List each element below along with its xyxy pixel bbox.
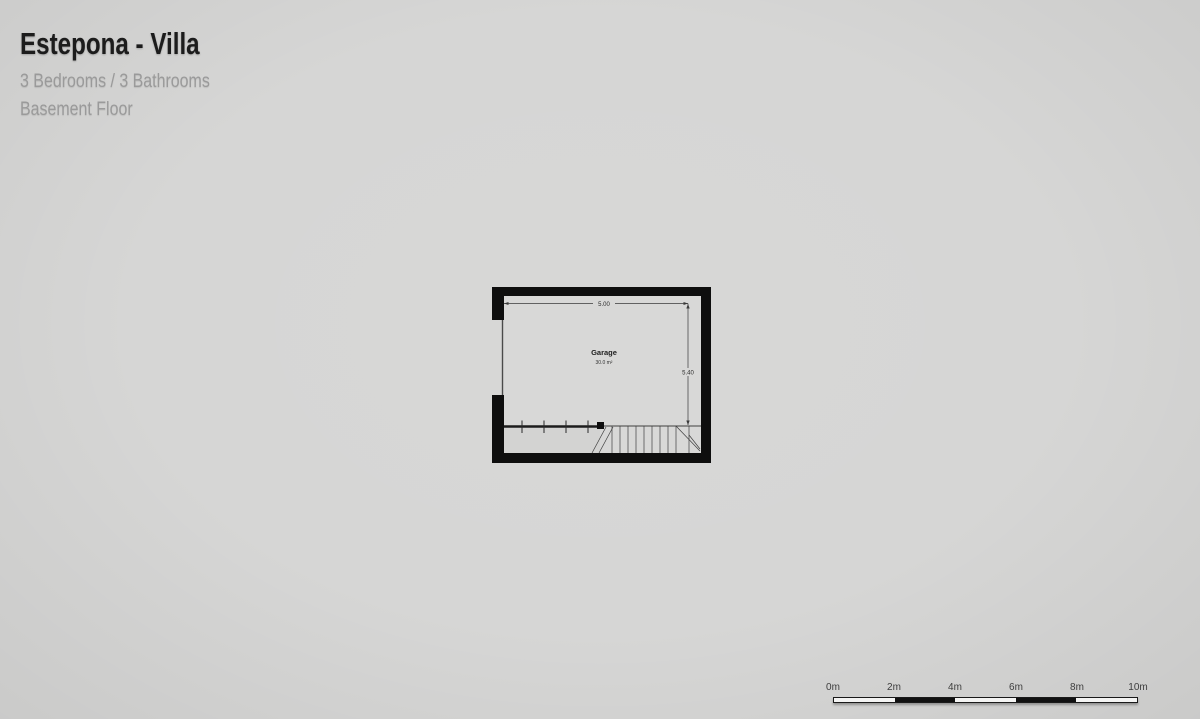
floor-plan-drawing: 5.00 5.40 Garage 30.0 m²	[492, 287, 711, 463]
room-area-label: 30.0 m²	[596, 360, 613, 366]
scale-segment	[834, 698, 895, 702]
scale-segment	[1016, 698, 1077, 702]
scale-segment	[955, 698, 1016, 702]
height-dimension-label: 5.40	[682, 371, 694, 377]
newel-post	[597, 422, 604, 429]
scale-bar: 0m 2m 4m 6m 8m 10m	[833, 682, 1138, 706]
scale-label-4m: 4m	[948, 682, 962, 693]
scale-bar-labels: 0m 2m 4m 6m 8m 10m	[833, 682, 1138, 693]
scale-label-10m: 10m	[1128, 682, 1147, 693]
wall-left-lower	[492, 395, 504, 463]
header: Estepona - Villa 3 Bedrooms / 3 Bathroom…	[20, 26, 250, 121]
scale-segment	[895, 698, 956, 702]
bedrooms-bathrooms-subtitle: 3 Bedrooms / 3 Bathrooms	[20, 71, 213, 93]
width-dimension-label: 5.00	[598, 302, 610, 308]
wall-bottom	[492, 453, 711, 463]
wall-left-upper	[492, 287, 504, 320]
page: Estepona - Villa 3 Bedrooms / 3 Bathroom…	[0, 0, 1200, 719]
stair-landing-area	[504, 427, 600, 453]
room-name-label: Garage	[591, 348, 617, 357]
wall-top	[492, 287, 711, 296]
floor-plan: 5.00 5.40 Garage 30.0 m²	[492, 287, 711, 463]
scale-label-8m: 8m	[1070, 682, 1084, 693]
wall-right	[701, 287, 711, 463]
scale-segment	[1076, 698, 1137, 702]
floor-name-subtitle: Basement Floor	[20, 99, 213, 121]
scale-label-0m: 0m	[826, 682, 840, 693]
scale-label-6m: 6m	[1009, 682, 1023, 693]
scale-bar-ruler	[833, 697, 1138, 703]
scale-label-2m: 2m	[887, 682, 901, 693]
page-title: Estepona - Villa	[20, 26, 200, 62]
